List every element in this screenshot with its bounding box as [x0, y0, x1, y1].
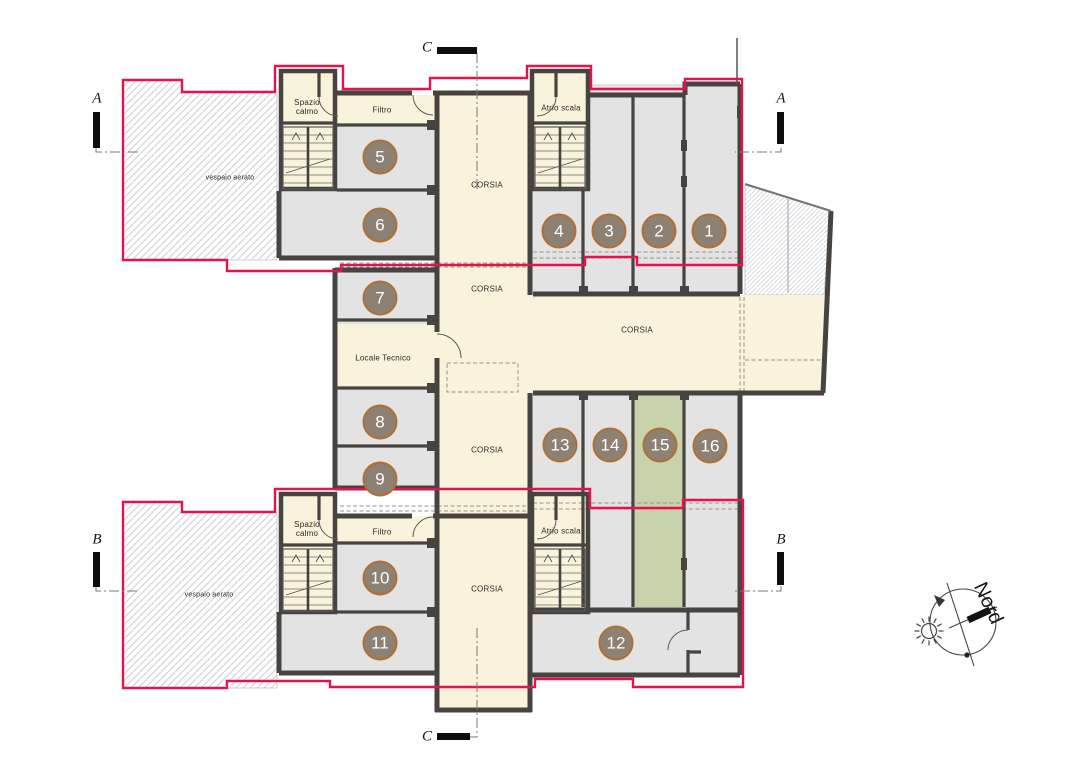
label-filtro-top: Filtro [373, 106, 392, 115]
label-vespaio-aerato-top: vespaio aerato [206, 175, 255, 182]
label-corsia-5: CORSIA [471, 585, 503, 594]
room-number: 7 [375, 288, 384, 308]
label-corsia-1: CORSIA [471, 181, 503, 190]
north-arrowhead [934, 595, 945, 607]
section-letter-a-right: A [776, 91, 785, 108]
room-number: 11 [371, 633, 389, 653]
section-b-right-bar [777, 552, 784, 585]
section-letter-c-top: C [422, 40, 432, 57]
section-letter-a-left: A [92, 91, 101, 108]
room-circle-4: 4 [542, 214, 577, 249]
label-corsia-4: CORSIA [471, 446, 503, 455]
section-a-left-bar [93, 112, 100, 148]
room-circle-10: 10 [363, 561, 398, 596]
room-number: 16 [701, 436, 720, 456]
room-number: 5 [375, 147, 384, 167]
room-circle-9: 9 [363, 462, 398, 497]
floor-plan-canvas: 1 2 3 4 5 6 7 8 9 10 11 12 13 14 15 16 S… [0, 0, 1076, 780]
room-circle-7: 7 [363, 281, 398, 316]
room-number: 3 [604, 221, 613, 241]
room-number: 4 [554, 221, 563, 241]
label-atrio-scala-top: Atrio scala [541, 104, 581, 113]
room-15-green-fill [635, 393, 684, 607]
label-spazio-calmo-bottom: Spazio calmo [286, 520, 328, 538]
room-number: 1 [704, 221, 713, 241]
room-circle-3: 3 [592, 214, 627, 249]
room-number: 15 [651, 435, 670, 455]
room-number: 6 [375, 215, 384, 235]
label-locale-tecnico: Locale Tecnico [355, 354, 411, 363]
room-circle-12: 12 [599, 626, 634, 661]
section-c-top-bar [437, 47, 477, 54]
room-circle-5: 5 [363, 140, 398, 175]
sun-icon [915, 617, 944, 646]
room-circle-11: 11 [363, 626, 398, 661]
room-number: 13 [551, 435, 570, 455]
room-circle-13: 13 [543, 428, 578, 463]
room-number: 10 [371, 568, 390, 588]
room-circle-14: 14 [593, 428, 628, 463]
room-circle-1: 1 [692, 214, 727, 249]
floor-plan-drawing [0, 0, 1076, 780]
label-vespaio-aerato-bottom: vespaio aerato [185, 592, 234, 599]
room-circle-15: 15 [643, 428, 678, 463]
section-letter-b-right: B [776, 532, 785, 549]
room-circle-8: 8 [363, 405, 398, 440]
room-number: 2 [654, 221, 663, 241]
room-number: 9 [375, 469, 384, 489]
section-b-left-bar [93, 552, 100, 587]
section-a-right-bar [777, 112, 784, 144]
label-atrio-scala-bottom: Atrio scala [541, 527, 581, 536]
section-c-bottom-bar [437, 733, 470, 740]
room-number: 12 [607, 633, 626, 653]
label-spazio-calmo-top: Spazio calmo [286, 98, 328, 116]
section-letter-b-left: B [92, 532, 101, 549]
label-filtro-bottom: Filtro [373, 528, 392, 537]
label-corsia-3: CORSIA [621, 326, 653, 335]
label-corsia-2: CORSIA [471, 285, 503, 294]
room-number: 8 [375, 412, 384, 432]
section-letter-c-bottom: C [422, 729, 432, 746]
room-number: 14 [601, 435, 620, 455]
room-circle-6: 6 [363, 208, 398, 243]
room-circle-16: 16 [693, 429, 728, 464]
room-circle-2: 2 [642, 214, 677, 249]
